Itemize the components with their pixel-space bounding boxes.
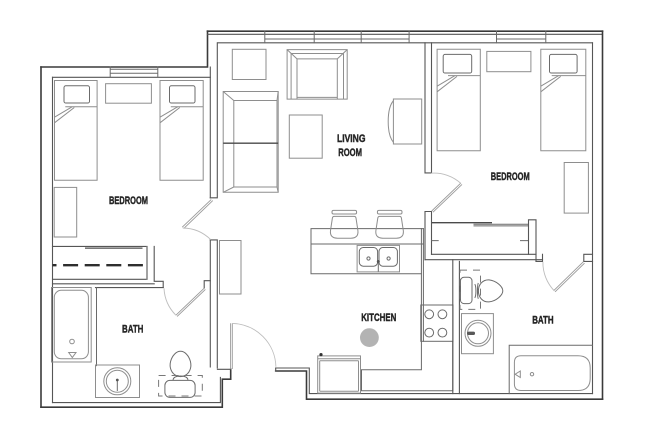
svg-text:ROOM: ROOM bbox=[338, 147, 362, 159]
svg-text:KITCHEN: KITCHEN bbox=[361, 312, 396, 324]
svg-text:LIVING: LIVING bbox=[337, 133, 366, 145]
svg-text:BATH: BATH bbox=[122, 324, 143, 336]
svg-text:BEDROOM: BEDROOM bbox=[109, 195, 148, 207]
svg-text:BEDROOM: BEDROOM bbox=[491, 171, 530, 183]
svg-text:BATH: BATH bbox=[532, 314, 553, 326]
